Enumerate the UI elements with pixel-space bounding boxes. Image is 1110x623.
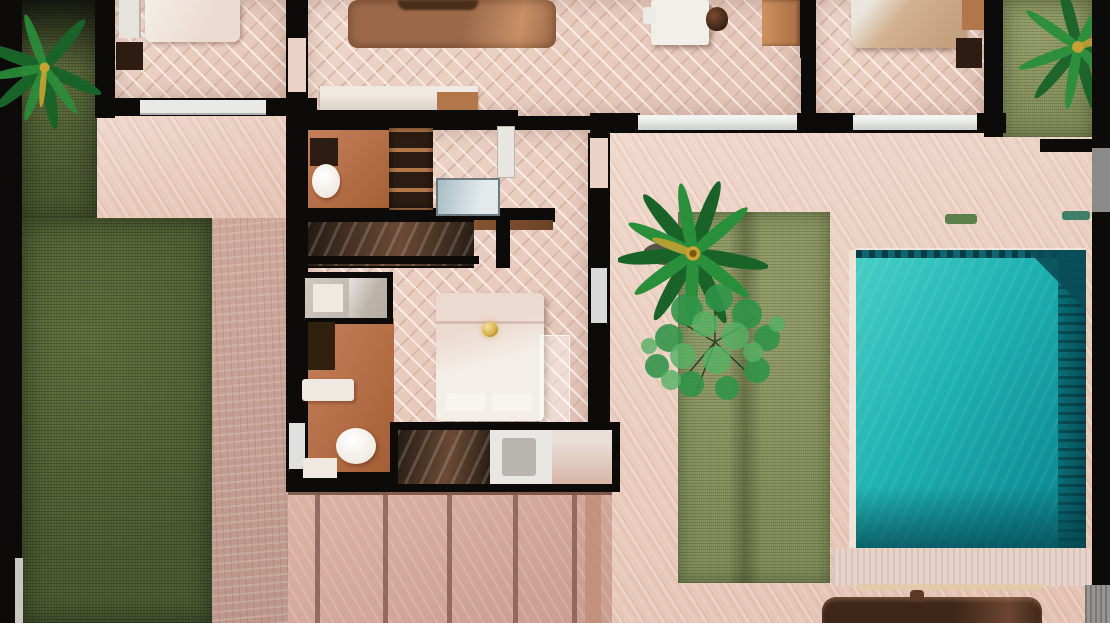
shower-band-glass-right [552, 430, 612, 484]
plank-seam [383, 495, 388, 623]
glass-cabinet-linens [313, 284, 343, 312]
pool-bottom-paving [833, 548, 1092, 586]
shower-band-fixture [490, 430, 552, 484]
master-bed-glass-side [540, 335, 570, 423]
pool-plant-accent-1 [945, 214, 977, 224]
left-lawn [22, 218, 212, 623]
wardrobe-shelving [389, 128, 433, 210]
glass-cabinet-inside [305, 278, 387, 318]
suite-door-leaf [497, 126, 515, 178]
plank-seam [447, 495, 452, 623]
wall-band-right-b [797, 113, 855, 133]
side-deck-strip [212, 218, 290, 623]
bath-mat [303, 458, 337, 478]
right-edge-gray-bottom [1085, 585, 1110, 623]
right-margin [1092, 0, 1110, 623]
chandelier-icon [482, 322, 498, 337]
bath-top-cabinet [310, 138, 338, 166]
window-bedroom1 [140, 100, 266, 115]
bath-counter [302, 379, 354, 401]
plank-seam [572, 495, 577, 623]
left-edge-post [15, 558, 23, 623]
glass-cabinet [299, 272, 393, 324]
pool-bottom-shadow [856, 486, 1086, 550]
wall-band-left [95, 98, 317, 116]
bath-toilet [336, 428, 376, 464]
wall-bedroom2-right [984, 0, 1003, 137]
right-garden-strip [1003, 0, 1092, 137]
pool-plant-accent-2 [1062, 211, 1090, 220]
door-opening-bedroom1 [288, 38, 306, 92]
window-suite-right [591, 268, 607, 323]
sideboard [762, 0, 802, 46]
bedroom2-bench [956, 38, 982, 68]
terrace-top-left [97, 116, 290, 220]
leafy-tree-courtyard-icon [627, 280, 802, 405]
plank-seam [513, 495, 518, 623]
palm-tree-right-icon [1013, 0, 1092, 112]
deck-wood-trim [857, 584, 1042, 590]
sofa-edge [398, 0, 478, 10]
palm-tree-left-icon [0, 0, 107, 135]
master-bed-pillow-2 [492, 393, 532, 411]
wall-band-living [315, 110, 518, 126]
doorway-suite-right [590, 138, 608, 188]
shower-glass-band [390, 422, 620, 492]
master-bed-pillow-1 [446, 393, 486, 411]
right-edge-gray [1092, 148, 1110, 212]
wall-dining-bedroom2 [800, 0, 816, 58]
bath-vanity-dark [308, 322, 335, 370]
wall-band-right-a [590, 113, 640, 133]
dining-chair-white [643, 7, 656, 24]
lounge-handle [910, 590, 924, 601]
bedroom1-bed [145, 0, 240, 42]
floor-plan-render [0, 0, 1110, 623]
bedroom1-wardrobe [119, 0, 141, 38]
bath-top-toilet [312, 164, 340, 198]
glass-wardrobe-frame-bottom [303, 256, 479, 264]
window-terrace-2 [853, 115, 978, 130]
plank-dark [585, 495, 601, 623]
master-bed [436, 293, 544, 421]
outdoor-lounge [822, 597, 1042, 623]
shower-band-glass-left [398, 430, 490, 484]
dining-table [651, 0, 709, 45]
plank-seam [315, 495, 320, 623]
glass-cabinet-shine [349, 278, 383, 318]
window-terrace-1 [638, 115, 798, 130]
bottom-plank-deck [288, 492, 612, 623]
shower-band-fixture-inner [502, 438, 536, 476]
pool [856, 250, 1086, 550]
bedroom1-dresser [116, 42, 143, 70]
laundry-glass-panel [436, 178, 500, 216]
bedroom2-bed [851, 0, 965, 48]
dining-chair-dark [706, 7, 728, 31]
wall-closet-right [496, 208, 510, 268]
